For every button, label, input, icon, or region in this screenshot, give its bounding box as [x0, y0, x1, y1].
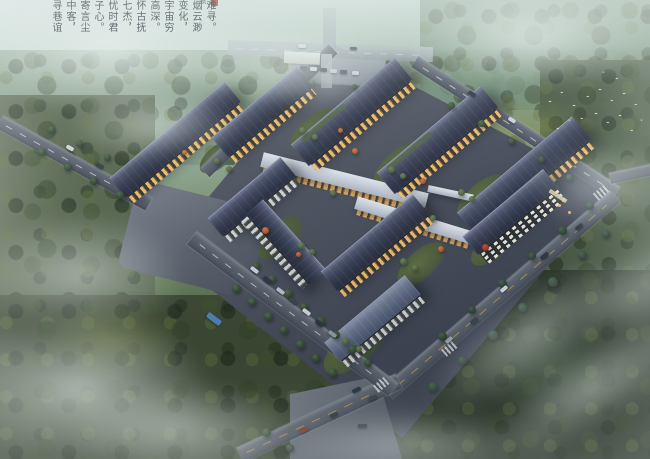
calligraphy-column: 寻巷谊	[50, 0, 60, 33]
calligraphy-column: 七杰，	[120, 0, 130, 33]
calligraphy-column: 怀古抚	[134, 0, 144, 33]
calligraphy-column: 宇宙穷	[162, 0, 172, 33]
meadow-patch	[40, 300, 180, 380]
entrance-light	[568, 211, 571, 214]
calligraphy-column: 寄言尘	[78, 0, 88, 33]
calligraphy-column: 变化，	[176, 0, 186, 33]
entrance-light	[558, 204, 561, 207]
meadow-patch	[470, 320, 640, 420]
entrance-drive	[321, 54, 332, 88]
rendering-canvas: ˇˇˇˇˇˇˇˇˇˇˇˇˇˇˇˇˇˇ 朱熹 难寻。 烟云渺 变化， 宇宙穷 高深…	[0, 0, 650, 459]
road-top-cross-arm	[323, 8, 336, 50]
gatehouse	[284, 51, 321, 65]
calligraphy-column: 高深。	[148, 0, 158, 33]
calligraphy-column: 忧时君	[106, 0, 116, 33]
calligraphy-column: 难寻。	[204, 0, 214, 33]
calligraphy-column: 子心。	[92, 0, 102, 33]
calligraphy-column: 中客，	[64, 0, 74, 33]
calligraphy-panel: 朱熹 难寻。 烟云渺 变化， 宇宙穷 高深。 怀古抚 七杰， 忧时君 子心。 寄…	[18, 0, 218, 72]
calligraphy-column: 烟云渺	[190, 0, 200, 33]
